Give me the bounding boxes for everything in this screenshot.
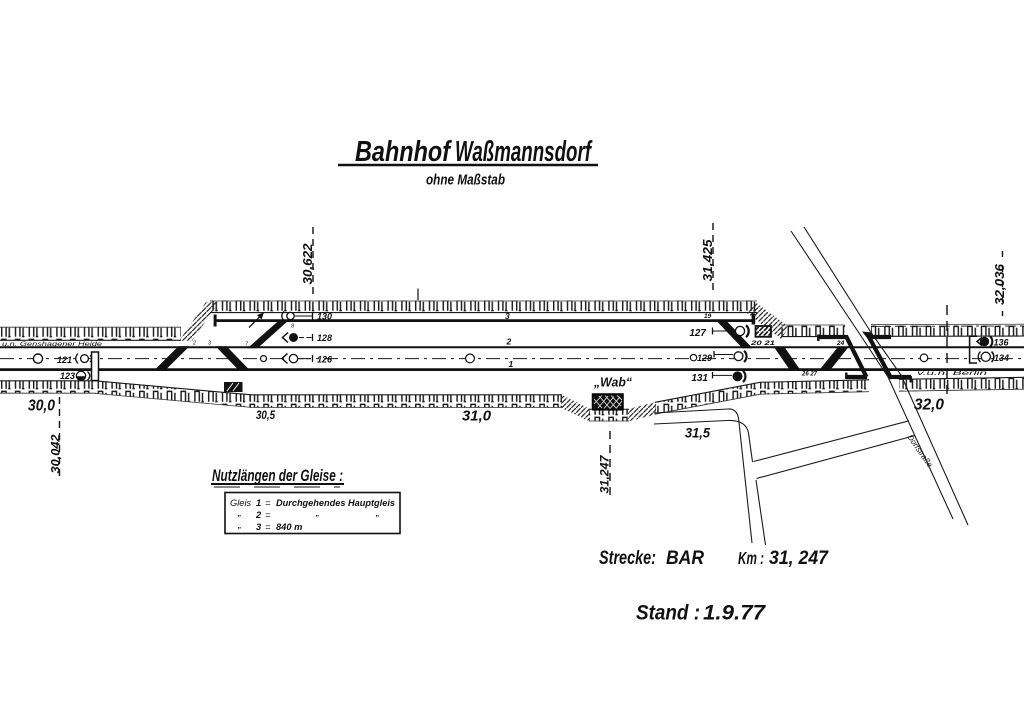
svg-text:Strecke:: Strecke: <box>599 548 656 569</box>
svg-text:30,5: 30,5 <box>256 408 275 422</box>
svg-text:„Wab“: „Wab“ <box>593 376 633 390</box>
svg-text:u.n. Genshagener Heide: u.n. Genshagener Heide <box>2 341 103 348</box>
svg-text:3: 3 <box>208 341 212 347</box>
svg-text:30,042: 30,042 <box>49 434 63 473</box>
svg-text:136: 136 <box>994 338 1010 348</box>
svg-text:121: 121 <box>57 355 72 365</box>
svg-text:19: 19 <box>704 313 712 320</box>
svg-text:„: „ <box>375 508 379 519</box>
svg-text:Durchgehendes Hauptgleis: Durchgehendes Hauptgleis <box>276 498 395 508</box>
svg-text:24: 24 <box>836 340 845 347</box>
svg-text:2: 2 <box>192 341 196 347</box>
svg-text:Gleis: Gleis <box>230 498 252 508</box>
svg-text:31,247: 31,247 <box>598 454 612 493</box>
svg-text:123: 123 <box>60 371 75 381</box>
svg-text:31,425: 31,425 <box>701 238 715 281</box>
svg-text:127: 127 <box>689 328 706 339</box>
svg-text:32,0: 32,0 <box>914 397 944 414</box>
svg-text:134: 134 <box>994 353 1009 363</box>
svg-text:ohne Maßstab: ohne Maßstab <box>426 172 505 189</box>
svg-text:20 21: 20 21 <box>750 340 776 347</box>
svg-text:„: „ <box>237 508 241 519</box>
svg-text:31, 247: 31, 247 <box>769 548 829 569</box>
svg-text:„: „ <box>315 508 319 519</box>
svg-text:„: „ <box>237 520 241 531</box>
svg-text:3: 3 <box>256 522 262 532</box>
svg-text:2: 2 <box>255 510 262 520</box>
svg-text:126: 126 <box>317 355 333 365</box>
svg-text:=: = <box>265 510 271 520</box>
svg-text:3: 3 <box>505 311 510 321</box>
svg-text:Waßmannsdorf: Waßmannsdorf <box>455 136 593 168</box>
svg-text:30,622: 30,622 <box>301 243 315 284</box>
svg-text:1.9.77: 1.9.77 <box>703 602 766 625</box>
svg-text:=: = <box>265 498 271 508</box>
svg-text:v.u.n. Berlin: v.u.n. Berlin <box>917 370 988 377</box>
svg-text:31,5: 31,5 <box>685 426 710 441</box>
svg-text:32,036: 32,036 <box>993 263 1007 305</box>
svg-text:Dorfstraße: Dorfstraße <box>905 433 934 470</box>
svg-text:130: 130 <box>317 312 332 322</box>
svg-text:BAR: BAR <box>666 548 704 569</box>
svg-text:8: 8 <box>291 324 295 330</box>
svg-text:Stand :: Stand : <box>636 602 700 625</box>
svg-text:Bahnhof: Bahnhof <box>355 136 453 168</box>
svg-text:840 m: 840 m <box>276 522 302 532</box>
svg-text:26 27: 26 27 <box>801 372 818 378</box>
svg-text:31,0: 31,0 <box>462 409 491 425</box>
svg-text:Nutzlängen der Gleise :: Nutzlängen der Gleise : <box>212 467 343 485</box>
svg-text:=: = <box>265 522 271 532</box>
svg-text:Km :: Km : <box>738 548 764 568</box>
svg-text:128: 128 <box>317 333 332 343</box>
svg-text:2: 2 <box>506 337 512 347</box>
svg-text:1: 1 <box>509 359 514 369</box>
svg-text:131: 131 <box>691 373 708 384</box>
svg-text:30,0: 30,0 <box>28 398 55 415</box>
svg-text:129: 129 <box>697 353 712 363</box>
svg-text:1: 1 <box>256 498 261 508</box>
